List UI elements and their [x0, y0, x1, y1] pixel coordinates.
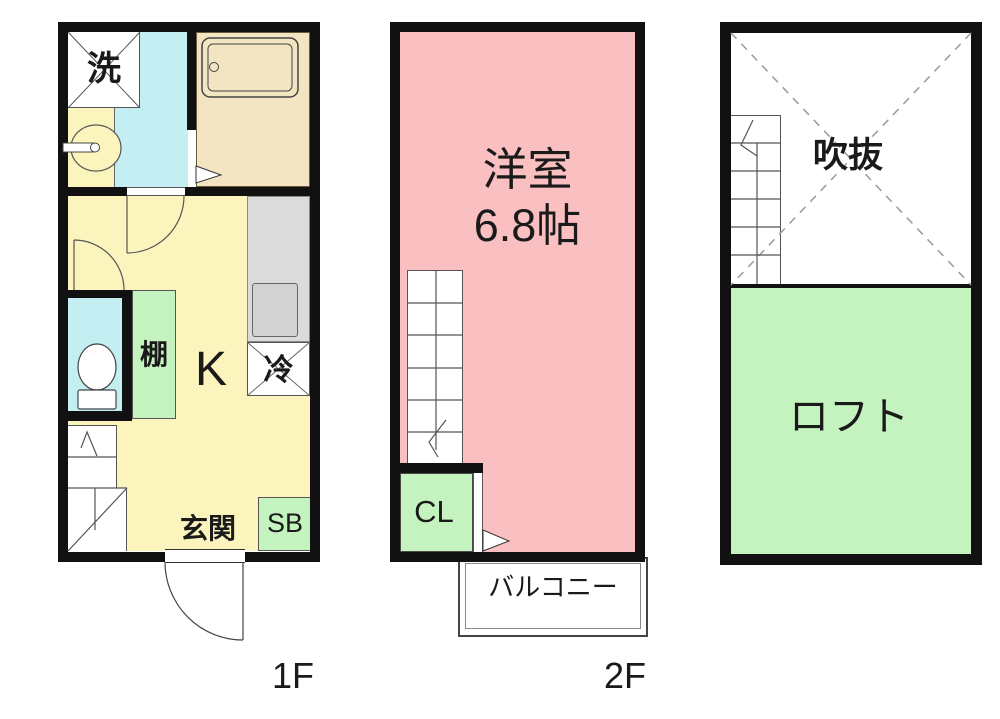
- floorplan: 洗 棚 K 冷 玄関 SB 1F 洋室 6.8帖 CL バルコニー 2F 吹抜 …: [0, 0, 1000, 719]
- entrance-label: 玄関: [160, 510, 256, 548]
- void-label: 吹抜: [785, 131, 911, 181]
- floor2-label: 2F: [590, 652, 660, 700]
- western-room-label: 洋室: [410, 140, 645, 200]
- washer-label: 洗: [68, 40, 140, 100]
- western-room-size-label: 6.8帖: [410, 196, 645, 256]
- floor1-outline: [58, 22, 320, 562]
- loft-label: ロフト: [770, 388, 928, 446]
- balcony-label: バルコニー: [470, 568, 636, 606]
- loft-outline: [720, 22, 982, 565]
- refrigerator-label: 冷: [247, 344, 310, 396]
- entrance-door-swing: [165, 562, 243, 640]
- entrance-door-opening: [165, 549, 245, 563]
- kitchen-label: K: [183, 340, 239, 400]
- floor1-label: 1F: [258, 652, 328, 700]
- shoebox-label: SB: [258, 503, 312, 545]
- sanitary-door-opening: [127, 187, 185, 196]
- shelf-label: 棚: [132, 333, 176, 377]
- floor2-outline: [390, 22, 645, 562]
- closet-label: CL: [402, 492, 466, 532]
